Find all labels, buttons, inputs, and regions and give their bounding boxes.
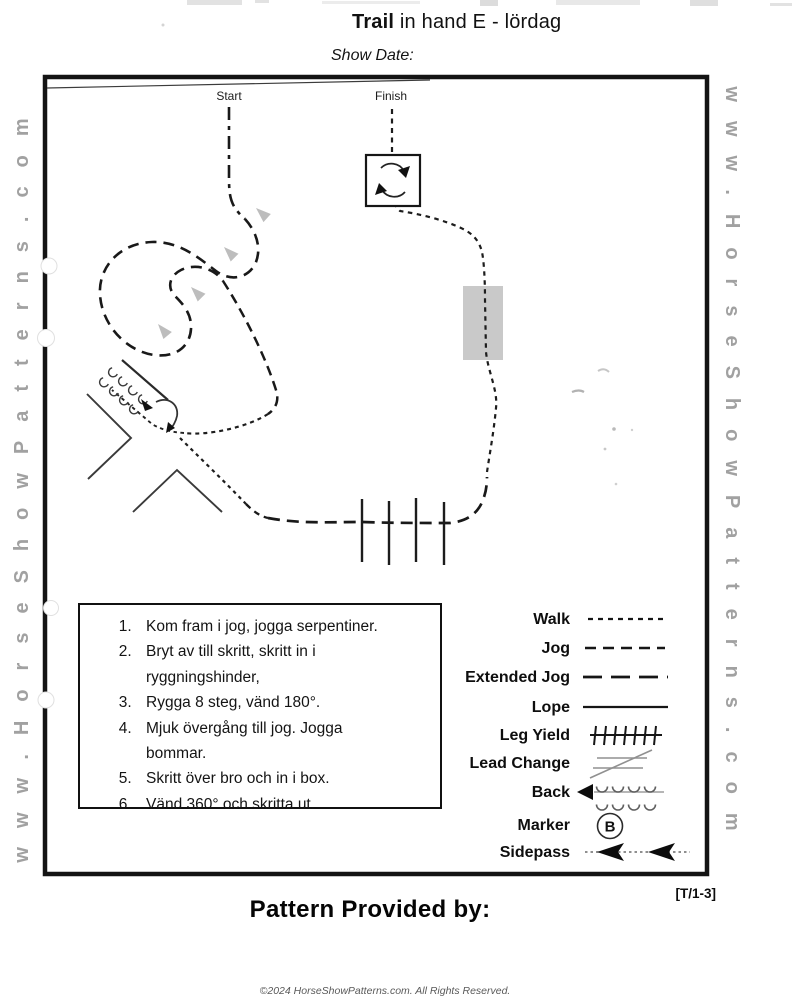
jog-over-poles bbox=[268, 477, 487, 523]
legend-label-lead-change: Lead Change bbox=[470, 755, 571, 772]
legend-lead-change-symbol bbox=[590, 750, 652, 778]
obstacle-rail bbox=[122, 360, 168, 400]
trail-diagram: Start Finish bbox=[0, 0, 800, 1005]
direction-arrow bbox=[220, 243, 238, 261]
instruction-item: Bryt av till skritt, skritt in i ryggnin… bbox=[136, 639, 398, 690]
start-jog-line bbox=[229, 107, 245, 219]
trot-poles bbox=[362, 498, 444, 565]
copyright-text: ©2024 HorseShowPatterns.com. All Rights … bbox=[0, 985, 770, 997]
legend-label-extended-jog: Extended Jog bbox=[465, 669, 570, 686]
jog-exit-diagonal bbox=[223, 281, 277, 414]
marker-letter: B bbox=[605, 819, 616, 836]
legend: Walk Jog Extended Jog Lope Leg Yield Lea… bbox=[465, 611, 690, 861]
ground-pole-chevron-left bbox=[87, 394, 131, 479]
legend-label-marker: Marker bbox=[518, 817, 570, 834]
provided-by-label: Pattern Provided by: bbox=[170, 896, 570, 924]
turn-box-rect bbox=[366, 155, 420, 206]
legend-label-walk: Walk bbox=[533, 611, 570, 628]
instructions-list: Kom fram i jog, jogga serpentiner. Bryt … bbox=[96, 614, 434, 817]
legend-sidepass-symbol bbox=[585, 843, 690, 861]
back-obstacle bbox=[87, 360, 222, 512]
legend-label-lope: Lope bbox=[532, 699, 570, 716]
pattern-code: [T/1-3] bbox=[636, 886, 716, 901]
turn-box bbox=[366, 155, 420, 206]
instruction-item: Vänd 360° och skritta ut. bbox=[136, 792, 398, 817]
border-scan-ghost bbox=[47, 80, 430, 88]
scan-dots-border bbox=[38, 258, 59, 708]
legend-marker-symbol: B bbox=[598, 814, 623, 839]
legend-label-leg-yield: Leg Yield bbox=[500, 727, 570, 744]
legend-label-jog: Jog bbox=[542, 640, 570, 657]
legend-leg-yield-symbol bbox=[590, 726, 662, 745]
serpentine-jog-path bbox=[100, 219, 258, 355]
turn-180-arc bbox=[156, 400, 177, 430]
legend-label-sidepass: Sidepass bbox=[500, 844, 570, 861]
start-label: Start bbox=[216, 89, 242, 103]
scan-artifacts-top bbox=[187, 0, 792, 6]
direction-arrow bbox=[252, 204, 271, 222]
instruction-item: Kom fram i jog, jogga serpentiner. bbox=[136, 614, 398, 639]
ground-pole-chevron-bottom bbox=[133, 470, 222, 512]
walk-transition-diagonal bbox=[184, 414, 268, 434]
legend-back-symbol bbox=[577, 784, 664, 810]
direction-arrow bbox=[187, 283, 205, 301]
instruction-item: Skritt över bro och in i box. bbox=[136, 766, 398, 791]
pattern-sheet: Trail in hand E - lördag Show Date: www.… bbox=[0, 0, 800, 1005]
instruction-item: Rygga 8 steg, vänd 180°. bbox=[136, 690, 398, 715]
walk-after-turn bbox=[180, 438, 246, 504]
finish-label: Finish bbox=[375, 89, 407, 103]
instruction-item: Mjuk övergång till jog. Jogga bommar. bbox=[136, 716, 398, 767]
direction-arrow bbox=[154, 320, 172, 339]
jog-transition-curve bbox=[246, 504, 268, 518]
legend-label-back: Back bbox=[532, 784, 570, 801]
instructions-box: Kom fram i jog, jogga serpentiner. Bryt … bbox=[78, 603, 442, 809]
back-endpoint-arrow bbox=[141, 399, 153, 411]
bridge bbox=[463, 286, 503, 360]
